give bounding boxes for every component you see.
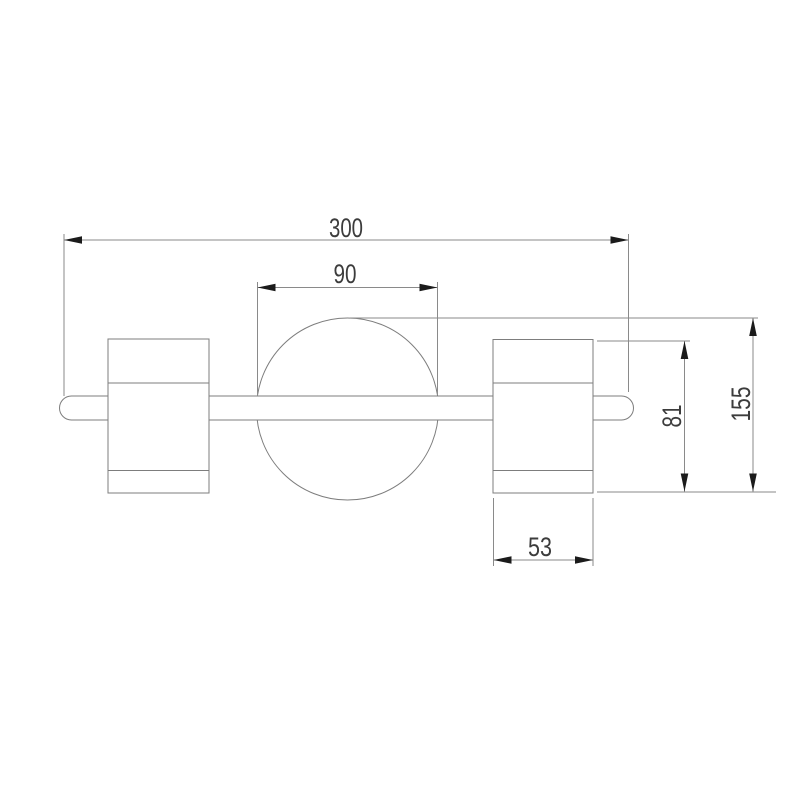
dimension-label-ball-diameter: 90: [334, 259, 357, 289]
arrowhead-right-icon: [575, 556, 593, 564]
arrowhead-bottom-icon: [681, 474, 689, 492]
arrowhead-left-icon: [64, 236, 82, 244]
dimension-shade-width: 53: [494, 498, 594, 566]
arrowhead-top-icon: [749, 318, 757, 336]
fixture-geometry: [60, 318, 634, 500]
arrowhead-right-icon: [611, 236, 629, 244]
right-shade-body: [493, 340, 593, 494]
arrowhead-bottom-icon: [749, 474, 757, 492]
dimension-label-shade-width: 53: [528, 532, 552, 562]
left-lamp-shade: [108, 339, 209, 493]
dimension-label-overall-width: 300: [329, 213, 363, 243]
drawing-stage: 300 90 81 155: [0, 0, 786, 786]
arrowhead-left-icon: [258, 284, 276, 292]
left-shade-body: [108, 339, 209, 493]
lamp-technical-drawing: 300 90 81 155: [0, 0, 786, 786]
arrowhead-right-icon: [420, 284, 438, 292]
dimension-ball-diameter: 90: [258, 259, 438, 396]
arrowhead-left-icon: [494, 556, 512, 564]
dimension-label-total-height: 155: [726, 387, 756, 422]
dimension-total-height: 155: [726, 318, 757, 492]
right-lamp-shade: [493, 340, 593, 494]
dimension-label-shade-height: 81: [657, 405, 687, 428]
dimension-shade-height: 81: [657, 341, 688, 492]
arrowhead-top-icon: [681, 341, 689, 359]
